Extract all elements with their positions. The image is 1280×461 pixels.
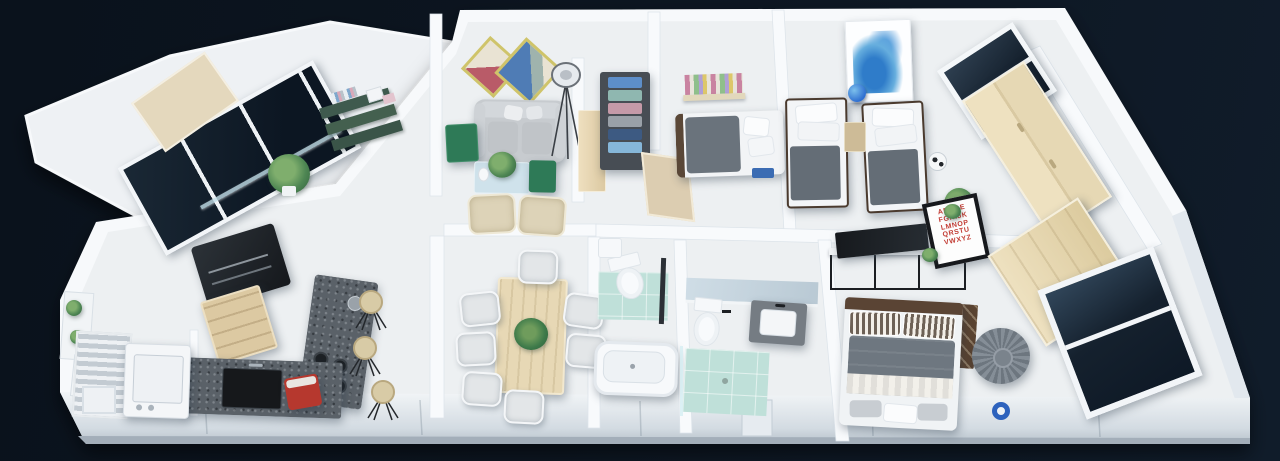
- toilet-bowl: [692, 311, 721, 348]
- pouf-center: [993, 348, 1013, 368]
- sofa-pillow: [526, 105, 543, 120]
- striped-pillow: [902, 312, 956, 340]
- bed-blanket: [685, 116, 741, 174]
- bar-stool: [346, 334, 384, 378]
- folded-clothes: [608, 129, 642, 140]
- twin-bed-left: [785, 97, 849, 208]
- bath2-toilet: [687, 296, 724, 353]
- foot-pillow: [917, 403, 947, 421]
- glass-coffee-table: [474, 159, 557, 194]
- bed-blanket: [790, 146, 841, 201]
- coffee-table-green: [529, 160, 557, 192]
- knit-throw: [846, 373, 953, 399]
- washer-knob: [136, 404, 142, 410]
- bath2-vanity: [749, 300, 808, 346]
- appliance-top: [286, 376, 317, 389]
- closet-handle: [1016, 123, 1025, 134]
- shower-drain: [722, 378, 728, 384]
- apartment-3d-floor-plan: ABCDE FGHIJK LMNOP QRSTU VWXYZ: [0, 0, 1280, 461]
- folded-clothes: [608, 77, 642, 88]
- master-bed: [839, 297, 964, 431]
- beige-armchair: [467, 193, 517, 235]
- vanity-faucet: [775, 304, 785, 308]
- dining-plant: [514, 317, 549, 350]
- washing-machine: [123, 343, 192, 419]
- wall-bookshelf-colorful: [683, 73, 746, 103]
- sofa-pillow: [503, 104, 523, 121]
- bathtub: [593, 341, 679, 398]
- folded-clothes: [608, 90, 642, 101]
- red-appliance: [283, 373, 322, 410]
- bookshelf-board: [683, 93, 745, 101]
- soccer-ball: [928, 152, 947, 171]
- dining-chair: [461, 371, 503, 408]
- bath1-sink: [598, 238, 622, 258]
- striped-pillow: [849, 311, 901, 336]
- bath2-black-fixture: [722, 310, 731, 313]
- corner-basket: [82, 386, 116, 414]
- bed-pillow: [747, 135, 775, 157]
- bed-pillow: [874, 123, 918, 147]
- bath2-shower-floor: [682, 348, 769, 416]
- bed-pillow: [797, 121, 840, 141]
- dining-chair: [458, 290, 501, 328]
- dining-chair: [517, 249, 558, 284]
- tv-unit-plant: [944, 204, 961, 219]
- green-string-shelf: [315, 88, 401, 144]
- washer-lid: [132, 354, 184, 404]
- twin-bed-right: [861, 100, 929, 213]
- dining-table: [494, 277, 568, 395]
- bar-stool: [352, 288, 390, 332]
- nightstand: [844, 122, 866, 152]
- foot-pillow: [850, 400, 882, 417]
- washer-knob: [148, 405, 154, 411]
- sink-faucet: [249, 363, 263, 366]
- sofa-cushion: [488, 121, 519, 154]
- terrace-plant: [66, 300, 82, 316]
- knitted-pouf: [972, 328, 1030, 384]
- underbed-storage-blue: [752, 168, 774, 178]
- shower-glass-screen: [680, 346, 683, 416]
- bookshelf-books: [685, 73, 744, 95]
- kitchen-sink-black: [221, 368, 282, 410]
- globe-decor: [848, 84, 866, 102]
- bar-stool: [364, 378, 402, 422]
- closet-handle: [1048, 159, 1057, 170]
- bed-blanket: [868, 149, 921, 206]
- folded-clothes: [608, 116, 642, 127]
- shelf-box-pink: [382, 92, 396, 104]
- beige-armchair: [517, 194, 568, 237]
- blue-ring-decor: [992, 402, 1010, 420]
- entry-plant-pot: [282, 186, 296, 196]
- foot-pillow: [883, 403, 919, 425]
- tv-unit-plant: [922, 248, 938, 262]
- dining-chair: [503, 389, 545, 425]
- folded-clothes: [608, 142, 642, 153]
- vanity-basin: [759, 309, 797, 337]
- diamond-geometric-wall-art: [466, 34, 553, 104]
- toilet-tank: [693, 297, 722, 314]
- window-mullion: [1065, 306, 1171, 351]
- bed-pillow: [742, 116, 770, 138]
- green-side-table: [445, 123, 479, 163]
- dining-chair: [455, 331, 497, 367]
- folded-clothes: [608, 103, 642, 114]
